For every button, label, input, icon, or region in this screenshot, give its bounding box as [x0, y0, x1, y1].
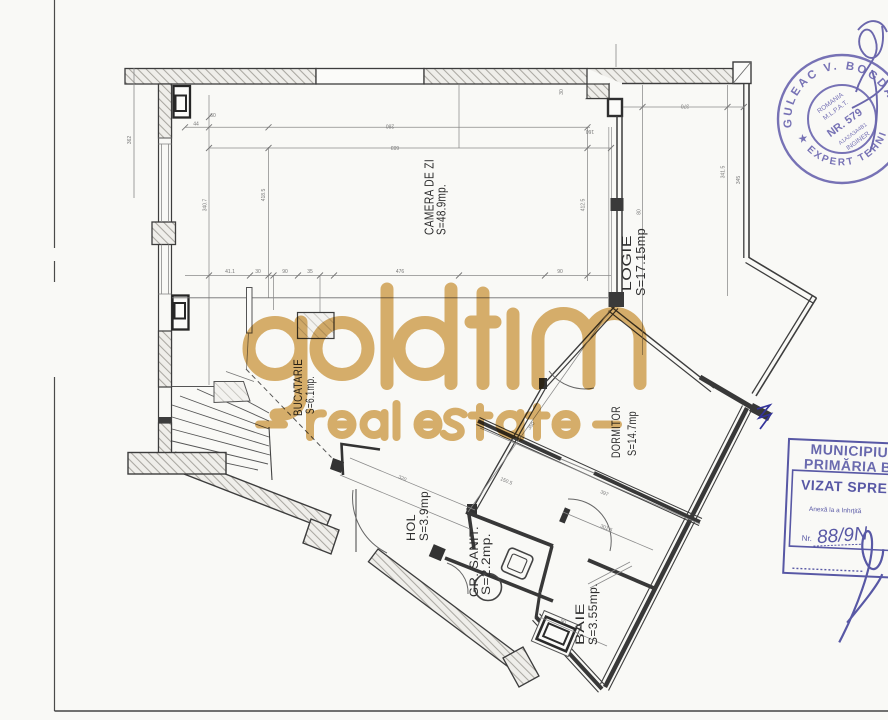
svg-text:340.7: 340.7: [203, 199, 209, 212]
svg-text:412.5: 412.5: [581, 199, 587, 212]
svg-text:80: 80: [637, 209, 643, 215]
svg-text:BAIE: BAIE: [573, 603, 587, 645]
svg-text:30: 30: [559, 89, 565, 95]
svg-text:345: 345: [736, 176, 742, 185]
svg-text:35: 35: [307, 269, 313, 275]
svg-text:341.5: 341.5: [721, 166, 727, 179]
svg-text:HOL: HOL: [404, 514, 418, 541]
svg-text:476: 476: [396, 269, 405, 275]
svg-text:41.1: 41.1: [225, 269, 235, 275]
svg-text:44: 44: [193, 122, 199, 128]
svg-text:S=3.55mp.: S=3.55mp.: [588, 583, 600, 645]
svg-text:280: 280: [386, 123, 395, 129]
svg-text:362: 362: [127, 136, 133, 145]
svg-text:S=3.9mp: S=3.9mp: [417, 491, 431, 541]
svg-text:S=48.9mp.: S=48.9mp.: [435, 184, 449, 235]
svg-text:S=14.7mp: S=14.7mp: [625, 411, 639, 456]
svg-text:160: 160: [586, 128, 595, 134]
svg-text:S=2.2mp.: S=2.2mp.: [481, 533, 493, 595]
svg-text:603: 603: [391, 144, 400, 150]
svg-text:370: 370: [681, 103, 690, 109]
svg-text:60: 60: [210, 113, 216, 119]
svg-text:418.5: 418.5: [261, 189, 267, 202]
svg-text:90: 90: [282, 269, 288, 275]
svg-text:LOGIE: LOGIE: [619, 235, 634, 291]
svg-text:30: 30: [255, 269, 261, 275]
svg-text:Nr.: Nr.: [802, 534, 813, 543]
svg-text:S=17.15mp: S=17.15mp: [634, 228, 648, 296]
svg-text:90: 90: [557, 269, 563, 275]
svg-text:DORMITOR: DORMITOR: [609, 406, 623, 458]
svg-text:GR. SANIT.: GR. SANIT.: [469, 526, 481, 597]
